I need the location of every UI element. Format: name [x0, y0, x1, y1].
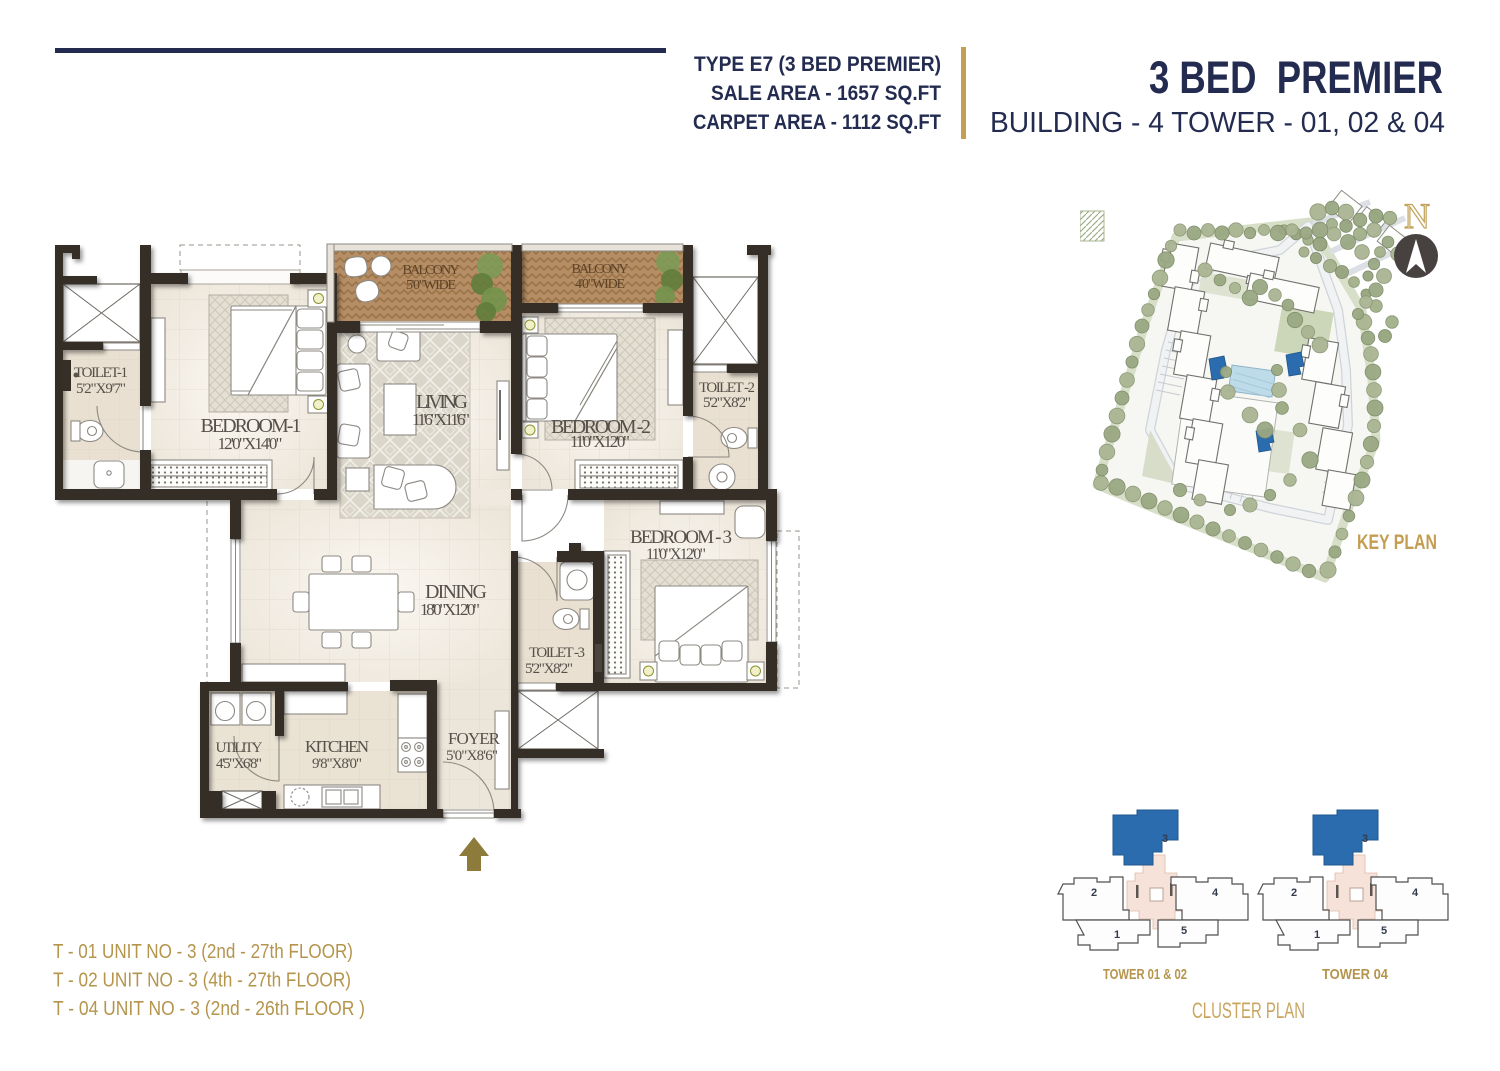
- svg-text:TOILET -2: TOILET -2: [699, 380, 755, 396]
- svg-text:5'0"WIDE: 5'0"WIDE: [406, 278, 456, 293]
- svg-text:11'0"X12'0": 11'0"X12'0": [570, 432, 630, 451]
- svg-text:BALCONY: BALCONY: [403, 263, 460, 278]
- svg-text:TOILET-1: TOILET-1: [74, 365, 128, 381]
- svg-text:T - 01 UNIT NO - 3 (2nd - 27th: T - 01 UNIT NO - 3 (2nd - 27th FLOOR): [53, 941, 353, 963]
- svg-text:5'2"X9'7": 5'2"X9'7": [76, 381, 126, 397]
- svg-text:12'0"X14'0": 12'0"X14'0": [218, 434, 283, 453]
- svg-text:4'0"WIDE: 4'0"WIDE: [575, 277, 625, 292]
- svg-text:TOWER 01 & 02: TOWER 01 & 02: [1103, 966, 1187, 983]
- svg-text:11'6"X11'6": 11'6"X11'6": [412, 410, 470, 429]
- svg-text:T - 04 UNIT NO - 3 (2nd - 26th: T - 04 UNIT NO - 3 (2nd - 26th FLOOR ): [53, 998, 365, 1020]
- svg-text:CLUSTER PLAN: CLUSTER PLAN: [1192, 998, 1305, 1023]
- svg-text:5'2"X8'2": 5'2"X8'2": [703, 395, 751, 411]
- svg-text:KEY PLAN: KEY PLAN: [1357, 531, 1437, 554]
- svg-text:T - 02 UNIT NO - 3 (4th - 27th: T - 02 UNIT NO - 3 (4th - 27th FLOOR): [53, 970, 351, 992]
- svg-text:TOWER 04: TOWER 04: [1322, 966, 1389, 983]
- svg-text:N: N: [1404, 196, 1430, 236]
- svg-text:BALCONY: BALCONY: [572, 262, 629, 277]
